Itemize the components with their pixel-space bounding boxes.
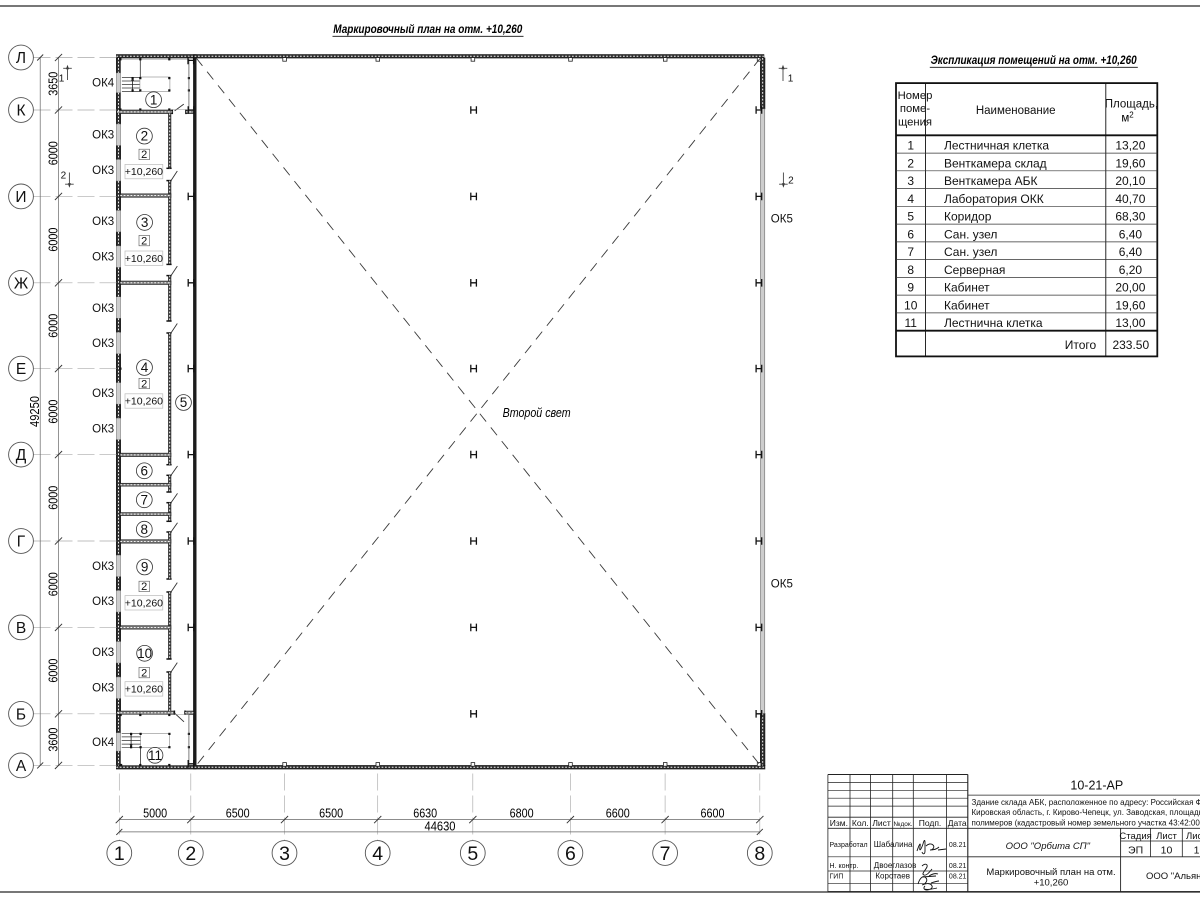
svg-text:5: 5 xyxy=(467,843,478,865)
svg-text:3600: 3600 xyxy=(46,728,60,752)
svg-text:Серверная: Серверная xyxy=(944,263,1005,277)
svg-text:6000: 6000 xyxy=(46,572,60,596)
svg-text:поме-: поме- xyxy=(900,103,930,115)
svg-text:4: 4 xyxy=(141,360,149,375)
svg-text:10: 10 xyxy=(137,646,152,661)
svg-text:ОК3: ОК3 xyxy=(92,388,114,400)
svg-text:13,00: 13,00 xyxy=(1115,316,1145,330)
svg-text:10: 10 xyxy=(904,298,918,312)
svg-text:Ж: Ж xyxy=(14,275,29,292)
svg-text:8: 8 xyxy=(754,843,765,865)
svg-text:9: 9 xyxy=(141,560,149,575)
svg-text:ОК3: ОК3 xyxy=(92,423,114,435)
svg-text:Дата: Дата xyxy=(948,818,967,828)
svg-text:ОК3: ОК3 xyxy=(92,647,114,659)
svg-text:ОК3: ОК3 xyxy=(92,216,114,228)
svg-text:2: 2 xyxy=(141,378,147,390)
svg-text:Коротаев: Коротаев xyxy=(875,872,910,881)
svg-text:1: 1 xyxy=(1194,845,1200,857)
svg-text:2: 2 xyxy=(141,129,149,144)
svg-text:68,30: 68,30 xyxy=(1115,210,1145,224)
svg-text:ОК4: ОК4 xyxy=(92,737,115,749)
svg-text:Листов: Листов xyxy=(1186,831,1200,842)
svg-text:Б: Б xyxy=(16,706,26,723)
svg-text:Л: Л xyxy=(16,50,26,67)
svg-text:3: 3 xyxy=(907,174,914,188)
svg-text:Экспликация помещений на отм.: Экспликация помещений на отм. +10,260 xyxy=(931,55,1138,67)
svg-text:7: 7 xyxy=(907,245,914,259)
svg-text:6,40: 6,40 xyxy=(1119,227,1143,241)
svg-text:Г: Г xyxy=(17,534,26,551)
svg-text:Номер: Номер xyxy=(898,90,933,102)
svg-text:Е: Е xyxy=(16,361,26,378)
svg-text:Коридор: Коридор xyxy=(944,210,992,224)
svg-text:Кабинет: Кабинет xyxy=(944,298,990,312)
svg-text:6600: 6600 xyxy=(701,806,725,820)
svg-text:Подп.: Подп. xyxy=(919,818,942,828)
svg-text:49250: 49250 xyxy=(28,396,42,427)
svg-text:6630: 6630 xyxy=(413,806,437,820)
svg-text:А: А xyxy=(16,758,27,775)
svg-text:Кабинет: Кабинет xyxy=(944,281,990,295)
svg-text:Лаборатория ОКК: Лаборатория ОКК xyxy=(944,192,1044,206)
svg-text:5: 5 xyxy=(907,210,914,224)
svg-text:ГИП: ГИП xyxy=(830,874,844,881)
svg-text:ОК3: ОК3 xyxy=(92,596,114,608)
svg-text:Сан. узел: Сан. узел xyxy=(944,245,997,259)
svg-text:6800: 6800 xyxy=(510,806,534,820)
svg-text:Венткамера склад: Венткамера склад xyxy=(944,156,1047,170)
svg-text:Лист: Лист xyxy=(1156,831,1177,842)
svg-text:2: 2 xyxy=(788,176,794,187)
svg-text:щения: щения xyxy=(898,116,932,128)
svg-text:+10,260: +10,260 xyxy=(125,166,163,178)
svg-text:3650: 3650 xyxy=(46,72,60,96)
svg-text:6000: 6000 xyxy=(46,314,60,338)
svg-text:2: 2 xyxy=(61,171,67,182)
svg-text:8: 8 xyxy=(141,522,149,537)
svg-text:Лист: Лист xyxy=(872,818,891,828)
svg-text:6000: 6000 xyxy=(46,228,60,252)
svg-text:7: 7 xyxy=(141,492,149,507)
svg-text:+10,260: +10,260 xyxy=(125,396,163,408)
svg-text:1: 1 xyxy=(150,92,158,107)
svg-text:+10,260: +10,260 xyxy=(125,253,163,265)
svg-text:6500: 6500 xyxy=(319,806,343,820)
svg-text:ОК5: ОК5 xyxy=(771,214,793,226)
svg-text:Разработал: Разработал xyxy=(830,841,868,849)
svg-text:6,20: 6,20 xyxy=(1119,263,1143,277)
svg-text:Шабалина: Шабалина xyxy=(874,840,913,849)
svg-text:ЭП: ЭП xyxy=(1128,845,1143,857)
svg-text:5000: 5000 xyxy=(143,806,167,820)
svg-text:6000: 6000 xyxy=(46,400,60,424)
svg-text:6: 6 xyxy=(565,843,576,865)
svg-text:2: 2 xyxy=(185,843,196,865)
svg-text:Лестничная клетка: Лестничная клетка xyxy=(944,139,1049,153)
svg-text:13,20: 13,20 xyxy=(1115,139,1145,153)
svg-text:ОК3: ОК3 xyxy=(92,561,114,573)
svg-text:1: 1 xyxy=(907,139,914,153)
svg-text:3: 3 xyxy=(141,215,149,230)
svg-text:ООО "Альянс: ООО "Альянс xyxy=(1146,871,1200,882)
svg-text:ОК3: ОК3 xyxy=(92,683,114,695)
svg-text:6: 6 xyxy=(907,227,914,241)
svg-text:+10,260: +10,260 xyxy=(1034,878,1069,889)
svg-text:7: 7 xyxy=(660,843,671,865)
svg-text:Кировская область, г. Кирово-Ч: Кировская область, г. Кирово-Чепецк, ул.… xyxy=(972,808,1200,817)
svg-text:Изм.: Изм. xyxy=(830,818,848,828)
svg-text:Кол.: Кол. xyxy=(852,818,869,828)
svg-text:6,40: 6,40 xyxy=(1119,245,1143,259)
svg-text:9: 9 xyxy=(907,281,914,295)
svg-text:Двоеглазов: Двоеглазов xyxy=(874,861,917,870)
svg-text:2: 2 xyxy=(141,235,147,247)
svg-text:08.21: 08.21 xyxy=(949,874,967,881)
svg-text:полимеров (кадастровый номер з: полимеров (кадастровый номер земельного … xyxy=(972,818,1200,827)
svg-text:В: В xyxy=(16,620,26,637)
svg-text:44630: 44630 xyxy=(425,820,456,834)
svg-text:Второй свет: Второй свет xyxy=(503,406,571,420)
svg-text:8: 8 xyxy=(907,263,914,277)
svg-text:08.21: 08.21 xyxy=(949,842,967,849)
svg-text:19,60: 19,60 xyxy=(1115,298,1145,312)
svg-text:Н. контр.: Н. контр. xyxy=(830,863,859,870)
svg-text:11: 11 xyxy=(148,748,162,763)
svg-text:Итого: Итого xyxy=(1065,338,1097,352)
svg-text:20,10: 20,10 xyxy=(1115,174,1145,188)
svg-text:3: 3 xyxy=(279,843,290,865)
svg-text:ОК5: ОК5 xyxy=(771,579,793,591)
svg-text:4: 4 xyxy=(907,192,914,206)
svg-text:20,00: 20,00 xyxy=(1115,281,1145,295)
svg-text:Сан. узел: Сан. узел xyxy=(944,227,997,241)
svg-text:Маркировочный план на отм. +10: Маркировочный план на отм. +10,260 xyxy=(333,24,523,36)
svg-text:И: И xyxy=(15,189,26,206)
svg-text:Площадь,: Площадь, xyxy=(1105,99,1158,111)
svg-text:ОК3: ОК3 xyxy=(92,303,114,315)
svg-text:ОК3: ОК3 xyxy=(92,130,114,142)
svg-text:10: 10 xyxy=(1161,845,1173,857)
svg-text:ОК3: ОК3 xyxy=(92,165,114,177)
svg-text:+10,260: +10,260 xyxy=(125,597,163,609)
svg-text:К: К xyxy=(16,103,25,120)
svg-text:1: 1 xyxy=(788,74,794,85)
svg-text:4: 4 xyxy=(372,843,383,865)
svg-text:ООО "Орбита СП": ООО "Орбита СП" xyxy=(1006,841,1091,852)
svg-text:11: 11 xyxy=(904,316,917,330)
svg-text:10-21-АР: 10-21-АР xyxy=(1070,779,1123,793)
svg-text:6000: 6000 xyxy=(46,486,60,510)
svg-text:Здание склада АБК, расположенн: Здание склада АБК, расположенное по адре… xyxy=(972,798,1200,807)
svg-text:Лестнична клетка: Лестнична клетка xyxy=(944,316,1043,330)
svg-text:2: 2 xyxy=(141,581,147,593)
svg-text:ОК3: ОК3 xyxy=(92,252,114,264)
svg-text:Венткамера АБК: Венткамера АБК xyxy=(944,174,1037,188)
svg-text:2: 2 xyxy=(141,667,147,679)
svg-text:Стадия: Стадия xyxy=(1119,831,1151,842)
svg-text:40,70: 40,70 xyxy=(1115,192,1145,206)
svg-text:Д: Д xyxy=(16,447,27,464)
svg-text:1: 1 xyxy=(114,843,125,865)
svg-text:Маркировочный план на отм.: Маркировочный план на отм. xyxy=(986,867,1115,878)
svg-text:6000: 6000 xyxy=(46,141,60,165)
svg-text:08.21: 08.21 xyxy=(949,863,967,870)
svg-text:6: 6 xyxy=(141,463,149,478)
svg-text:ОК3: ОК3 xyxy=(92,338,114,350)
svg-text:ОК4: ОК4 xyxy=(92,78,115,90)
svg-text:№док.: №док. xyxy=(893,821,912,828)
svg-text:6600: 6600 xyxy=(606,806,630,820)
svg-text:Наименование: Наименование xyxy=(976,105,1056,117)
svg-text:2: 2 xyxy=(141,149,147,161)
svg-text:6500: 6500 xyxy=(226,806,250,820)
svg-text:+10,260: +10,260 xyxy=(125,684,163,696)
svg-text:233.50: 233.50 xyxy=(1112,338,1149,352)
svg-text:6000: 6000 xyxy=(46,659,60,683)
svg-text:5: 5 xyxy=(180,395,188,410)
svg-text:2: 2 xyxy=(907,156,914,170)
svg-text:19,60: 19,60 xyxy=(1115,156,1145,170)
